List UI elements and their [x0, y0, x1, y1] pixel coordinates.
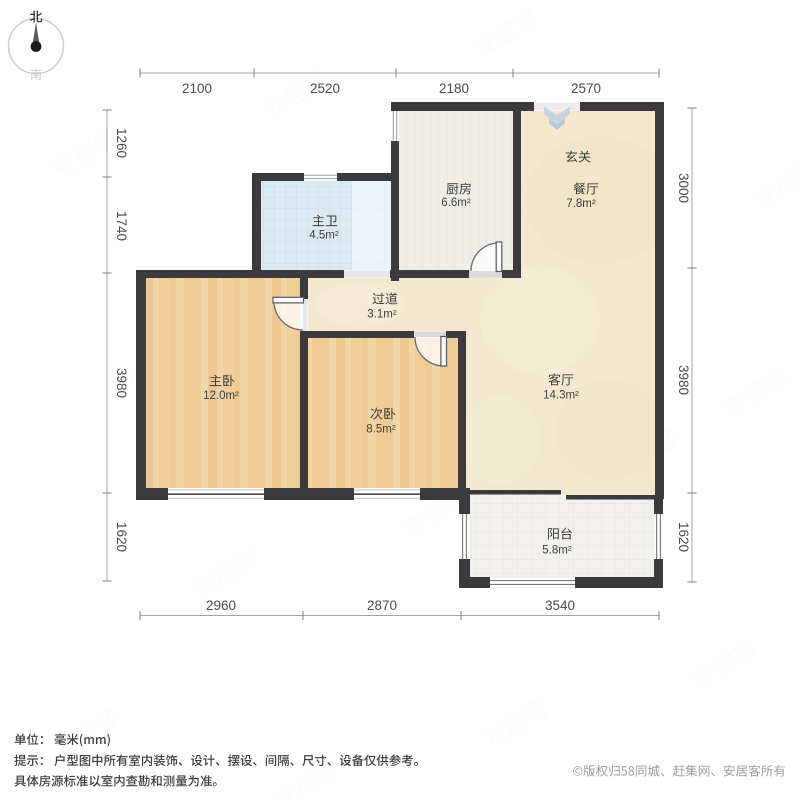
svg-text:3000: 3000	[676, 173, 691, 203]
svg-text:3980: 3980	[114, 368, 129, 398]
svg-text:1620: 1620	[114, 522, 129, 552]
svg-text:1740: 1740	[114, 211, 129, 241]
svg-text:2180: 2180	[439, 81, 469, 96]
svg-text:3.1m²: 3.1m²	[367, 309, 397, 321]
svg-text:2570: 2570	[571, 81, 601, 96]
svg-text:2870: 2870	[367, 598, 397, 613]
svg-text:12.0m²: 12.0m²	[203, 390, 239, 402]
svg-text:4.5m²: 4.5m²	[309, 230, 339, 242]
svg-text:2100: 2100	[182, 81, 212, 96]
svg-text:5.8m²: 5.8m²	[542, 545, 572, 557]
svg-text:7.8m²: 7.8m²	[566, 198, 596, 210]
svg-text:3540: 3540	[545, 598, 575, 613]
svg-text:1620: 1620	[676, 522, 691, 552]
svg-text:2520: 2520	[310, 81, 340, 96]
svg-text:3980: 3980	[676, 365, 691, 395]
svg-text:2960: 2960	[206, 598, 236, 613]
svg-text:6.6m²: 6.6m²	[441, 197, 471, 209]
svg-text:8.5m²: 8.5m²	[366, 424, 396, 436]
svg-text:1260: 1260	[114, 128, 129, 158]
svg-text:14.3m²: 14.3m²	[543, 390, 579, 402]
